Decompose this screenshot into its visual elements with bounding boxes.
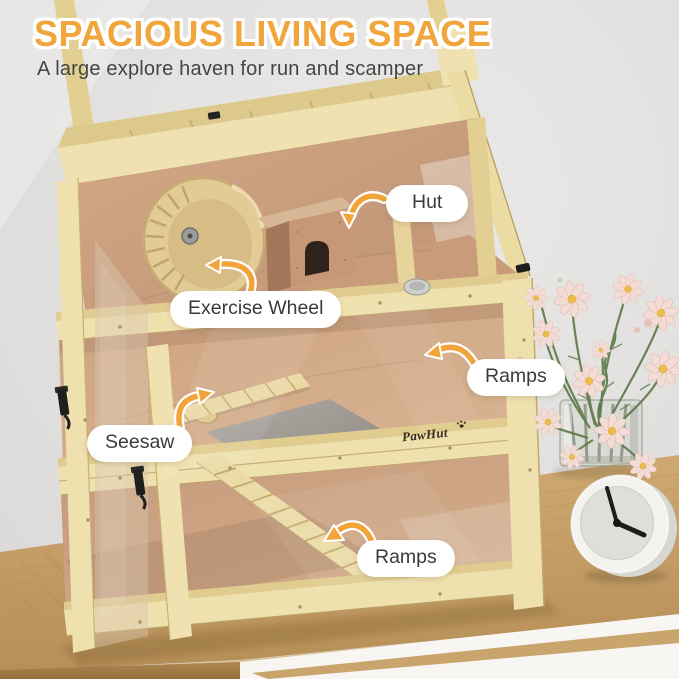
callout-label-ramps-lower: Ramps — [357, 540, 455, 577]
product-infographic: SPACIOUS LIVING SPACE A large explore ha… — [0, 0, 679, 679]
page-subtitle: A large explore haven for run and scampe… — [37, 58, 423, 81]
page-title: SPACIOUS LIVING SPACE — [34, 13, 491, 55]
callout-label-hut: Hut — [386, 185, 468, 222]
hut-left-face — [266, 221, 291, 294]
food-dish — [404, 279, 430, 295]
hut-doorway — [305, 241, 329, 276]
clock-center — [613, 519, 621, 527]
callout-label-ramps-upper: Ramps — [467, 359, 565, 396]
callout-label-exercise-wheel: Exercise Wheel — [170, 291, 341, 328]
scene-illustration — [0, 0, 679, 679]
callout-label-seesaw: Seesaw — [87, 425, 192, 462]
